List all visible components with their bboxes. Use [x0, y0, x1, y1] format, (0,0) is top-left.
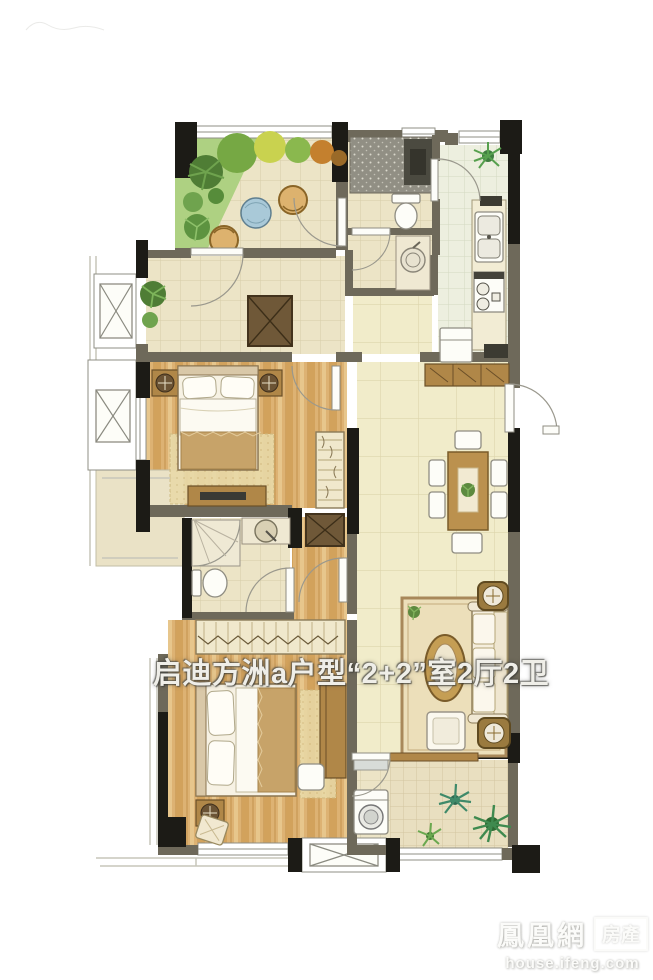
desk-chair-icon [298, 764, 324, 790]
double-bed-icon [196, 684, 296, 796]
wardrobe-icon [316, 432, 344, 508]
window-balcony-bottom [398, 848, 502, 860]
nightstand-icon [256, 370, 282, 396]
tree-icon [310, 140, 334, 164]
desk-icon [320, 684, 346, 778]
lamp-table-icon [478, 582, 508, 610]
entry-door [505, 384, 559, 434]
bay-window-upper-left-icon [94, 274, 136, 348]
corner-shower-icon [192, 520, 240, 566]
tree-icon [331, 150, 347, 166]
vanity-sink-icon [396, 236, 430, 290]
window-bedroom2-bottom [198, 843, 288, 855]
wardrobe-icon [196, 620, 345, 654]
dining-chair-icon [452, 533, 482, 553]
window-sill [390, 753, 478, 761]
double-bed-icon [178, 366, 261, 470]
vanity-sink-icon [242, 518, 290, 544]
window-kitchen-top [459, 131, 500, 143]
tv-console-icon [188, 486, 266, 506]
toilet-icon [192, 569, 227, 597]
plan-title: 启迪方洲a户型“2+2”室2厅2卫 [153, 650, 549, 692]
fridge-icon [440, 328, 472, 362]
watermark-badge: 房產 [594, 917, 648, 951]
watermark: 鳳凰網 房產 house.ifeng.com [497, 914, 648, 972]
dining-table-icon [448, 452, 488, 530]
bay-window-master-icon [88, 360, 136, 470]
dining-chair-icon [455, 431, 481, 449]
lamp-table-icon [478, 718, 510, 748]
watermark-domain: house.ifeng.com [497, 955, 648, 972]
shoe-cabinet-icon [248, 296, 292, 346]
terrace-table-icon [241, 198, 271, 228]
washing-machine-icon [354, 790, 388, 834]
sideboard-icon [425, 364, 509, 386]
duct-icon [306, 514, 344, 546]
faint-sketch [26, 22, 104, 30]
floor-plan-page: 启迪方洲a户型“2+2”室2厅2卫 鳳凰網 房產 house.ifeng.com [0, 0, 653, 980]
tree-icon [285, 137, 311, 163]
dining-chair-icon [491, 492, 507, 518]
dining-chair-icon [491, 460, 507, 486]
tree-icon [254, 131, 286, 163]
nightstand-icon [152, 370, 178, 396]
stove-icon [474, 272, 504, 312]
watermark-brand: 鳳凰網 [497, 914, 587, 953]
dining-chair-icon [429, 492, 445, 518]
armchair-icon [427, 712, 465, 750]
floor-plan-drawing [0, 0, 653, 980]
kitchen-sink-icon [475, 212, 503, 262]
dining-chair-icon [429, 460, 445, 486]
terrace-chair-icon [279, 186, 307, 214]
tree-icon [217, 133, 257, 173]
